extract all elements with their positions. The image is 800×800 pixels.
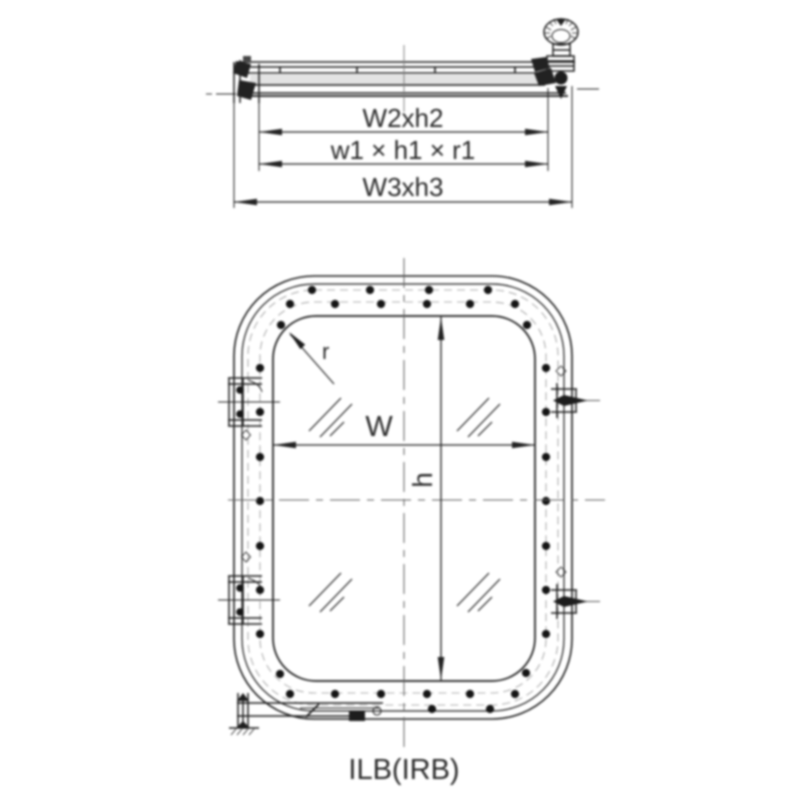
svg-text:w1 × h1 × r1: w1 × h1 × r1 <box>330 135 476 165</box>
svg-text:ILB(IRB): ILB(IRB) <box>348 754 459 786</box>
svg-text:r: r <box>322 339 329 364</box>
svg-text:W2xh2: W2xh2 <box>363 103 444 133</box>
svg-text:W: W <box>365 411 393 443</box>
svg-text:W3xh3: W3xh3 <box>363 172 444 202</box>
svg-text:h: h <box>407 472 438 488</box>
